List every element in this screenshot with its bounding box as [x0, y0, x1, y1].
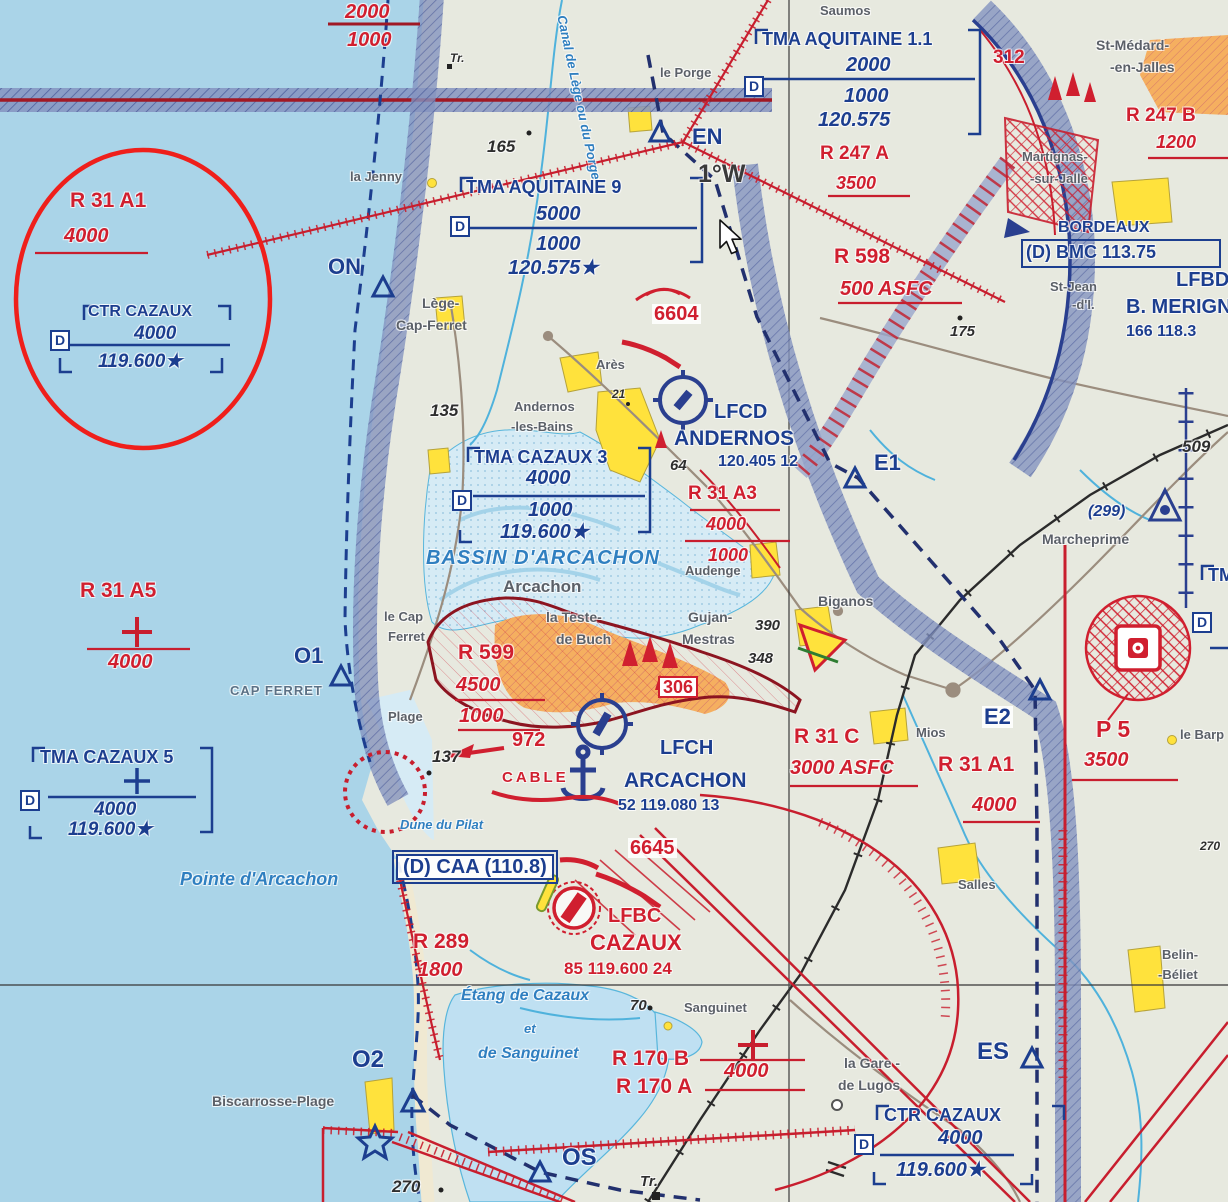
tma-aquitaine-9-upper: 5000	[536, 204, 581, 224]
r31a1-e-alt: 4000	[972, 795, 1017, 815]
tma-aquitaine-9-d-badge: D	[450, 216, 470, 237]
r247b-alt: 1200	[1156, 133, 1196, 151]
r247b-title: R 247 B	[1126, 106, 1196, 125]
town-arcachon: Arcachon	[503, 578, 581, 595]
town-le-porge: le Porge	[660, 66, 711, 79]
r31a5-alt: 4000	[108, 652, 153, 672]
tma-cazaux-3-lower: 1000	[528, 500, 573, 520]
pointe-arcachon-label: Pointe d'Arcachon	[180, 870, 338, 888]
town-st-medard-1: St-Médard-	[1096, 38, 1169, 52]
town-andernos-2: -les-Bains	[511, 420, 573, 433]
town-lege-1: Lège-	[422, 296, 459, 310]
town-la-jenny: la Jenny	[350, 170, 402, 183]
caa-box-label: (D) CAA (110.8)	[396, 854, 554, 880]
spot-270: 270	[392, 1178, 420, 1195]
r31a5-title: R 31 A5	[80, 580, 156, 601]
spot-70: 70	[630, 998, 647, 1013]
spot-390: 390	[755, 618, 780, 633]
tma-aquitaine-9-freq: 120.575★	[508, 258, 598, 278]
tma-aquitaine-9-title: TMA AQUITAINE 9	[466, 178, 621, 196]
spot-175: 175	[950, 324, 975, 339]
d-badge-east: D	[1192, 612, 1212, 633]
town-gujan-1: Gujan-	[688, 610, 732, 624]
etang-sanguinet-label: de Sanguinet	[478, 1046, 578, 1062]
town-st-jean-2: -d'I.	[1072, 298, 1095, 311]
tma-cazaux-3-upper: 4000	[526, 468, 571, 488]
ctr-cazaux-se-freq: 119.600★	[896, 1160, 985, 1180]
r31a1-nw-alt: 4000	[64, 226, 109, 246]
town-martignas-2: -sur-Jalle	[1030, 172, 1088, 185]
r31a1-nw-title: R 31 A1	[70, 190, 146, 211]
r31a1-e-title: R 31 A1	[938, 754, 1014, 775]
town-saumos: Saumos	[820, 4, 871, 17]
etang-cazaux-label: Étang de Cazaux	[461, 988, 589, 1004]
cazaux-airport-data: 85 119.600 24	[564, 960, 672, 977]
town-martignas-1: Martignas-	[1022, 150, 1088, 163]
town-belin-2: -Béliet	[1158, 968, 1198, 981]
airway-alt-upper: 2000	[345, 2, 390, 22]
declination-label: 1°W	[698, 162, 746, 187]
town-ares: Arès	[596, 358, 625, 371]
spot-165: 165	[487, 138, 515, 155]
ctr-cazaux-se-alt: 4000	[938, 1128, 983, 1148]
r599-title: R 599	[458, 642, 514, 663]
ctr-cazaux-nw-d-badge: D	[50, 330, 70, 351]
tma-aquitaine-11-freq: 120.575	[818, 110, 890, 130]
ctr-cazaux-se-d-badge: D	[854, 1134, 874, 1155]
town-belin-1: Belin-	[1162, 948, 1198, 961]
ctr-cazaux-nw-title: CTR CAZAUX	[88, 304, 192, 320]
wpt-es: ES	[977, 1040, 1009, 1064]
tma-cazaux-3-d-badge: D	[452, 490, 472, 511]
town-le-cap-1: le Cap	[384, 610, 423, 623]
tr-mark-north: Tr.	[450, 52, 464, 64]
bordeaux-title: BORDEAUX	[1058, 220, 1150, 236]
cable-label: CABLE	[502, 770, 569, 785]
town-la-gare-2: de Lugos	[838, 1078, 900, 1092]
bordeaux-bmc: (D) BMC 113.75	[1026, 243, 1156, 261]
obstacle-972: 972	[512, 730, 545, 750]
tma-cazaux-3-freq: 119.600★	[500, 522, 589, 542]
spot-135: 135	[430, 402, 458, 419]
r599-lower: 1000	[459, 706, 504, 726]
wpt-o2: O2	[352, 1048, 384, 1072]
r247a-title: R 247 A	[820, 144, 889, 163]
town-biganos: Biganos	[818, 594, 873, 608]
tma-aquitaine-11-d-badge: D	[744, 76, 764, 97]
ctr-cazaux-nw-freq: 119.600★	[98, 352, 182, 371]
airway-alt-lower: 1000	[347, 30, 392, 50]
wpt-en: EN	[692, 126, 723, 148]
r31a3-title: R 31 A3	[688, 484, 757, 503]
town-andernos-1: Andernos	[514, 400, 575, 413]
merignac-name: B. MERIGNAC	[1126, 297, 1228, 317]
spot-64: 64	[670, 458, 687, 473]
town-biscarrosse: Biscarrosse-Plage	[212, 1094, 334, 1108]
wpt-o1: O1	[294, 645, 323, 667]
obstacle-6604: 6604	[652, 304, 701, 324]
r289-alt: 1800	[418, 960, 463, 980]
labels-layer: 20001000R 31 A14000CTR CAZAUX4000119.600…	[0, 0, 1228, 1202]
r31a3-upper: 4000	[706, 515, 746, 533]
wpt-e1: E1	[874, 452, 901, 474]
andernos-airport-data: 120.405 12	[718, 454, 798, 470]
spot-348: 348	[748, 651, 773, 666]
r599-upper: 4500	[456, 675, 501, 695]
tma-aquitaine-11-lower: 1000	[844, 86, 889, 106]
town-plage: Plage	[388, 710, 423, 723]
spot-137: 137	[432, 748, 460, 765]
bassin-darcachon-label: BASSIN D'ARCACHON	[426, 548, 660, 568]
r598-alt: 500 ASFC	[840, 279, 933, 299]
p5-title: P 5	[1096, 718, 1130, 741]
town-gujan-2: Mestras	[682, 632, 735, 646]
town-la-gare-1: la Gare -	[844, 1056, 900, 1070]
town-salles: Salles	[958, 878, 996, 891]
canal-lege-label: Canal de Lège ou du Porge	[555, 14, 603, 181]
tma-cazaux-3-title: TMA CAZAUX 3	[474, 448, 607, 466]
tma-cazaux-5-freq: 119.600★	[68, 820, 152, 839]
p5-alt: 3500	[1084, 750, 1129, 770]
lfch-code: LFCH	[660, 738, 713, 758]
obstacle-306: 306	[658, 676, 698, 698]
r31c-alt: 3000 ASFC	[790, 758, 894, 778]
tma-cazaux-5-title: TMA CAZAUX 5	[40, 748, 173, 766]
r598-title: R 598	[834, 246, 890, 267]
town-la-teste-1: la Teste-	[546, 610, 602, 624]
vfr-chart: 20001000R 31 A14000CTR CAZAUX4000119.600…	[0, 0, 1228, 1202]
tma-clip-east: TMA	[1208, 566, 1228, 584]
tma-cazaux-5-alt: 4000	[94, 800, 136, 819]
r31c-title: R 31 C	[794, 726, 859, 747]
ctr-cazaux-se-title: CTR CAZAUX	[884, 1106, 1001, 1124]
merignac-data: 166 118.3	[1126, 324, 1196, 340]
arcachon-airport-data: 52 119.080 13	[618, 798, 719, 814]
dune-pilat-label: Dune du Pilat	[400, 818, 483, 831]
r170-alt: 4000	[724, 1061, 769, 1081]
town-lege-2: Cap-Ferret	[396, 318, 467, 332]
ctr-cazaux-nw-alt: 4000	[134, 324, 176, 343]
r170a-title: R 170 A	[616, 1076, 692, 1097]
lfbd-code: LFBD	[1176, 270, 1228, 290]
arcachon-airport-name: ARCACHON	[624, 770, 747, 791]
tma-cazaux-5-d-badge: D	[20, 790, 40, 811]
town-audenge: Audenge	[685, 564, 741, 577]
town-st-jean-1: St-Jean	[1050, 280, 1097, 293]
wpt-on: ON	[328, 256, 361, 278]
r247a-alt: 3500	[836, 174, 876, 192]
etang-et-label: et	[524, 1022, 536, 1035]
town-sanguinet: Sanguinet	[684, 1001, 747, 1014]
tma-aquitaine-11-title: TMA AQUITAINE 1.1	[762, 30, 932, 48]
r289-title: R 289	[413, 931, 469, 952]
cazaux-airport-name: CAZAUX	[590, 932, 682, 954]
spot-270-east: 270	[1200, 840, 1220, 852]
town-le-cap-2: Ferret	[388, 630, 425, 643]
obstacle-509: 509	[1182, 438, 1210, 455]
r31a3-lower: 1000	[708, 546, 748, 564]
andernos-airport-name: ANDERNOS	[674, 428, 794, 449]
obstacle-6645: 6645	[628, 838, 677, 858]
spot-21: 21	[612, 388, 625, 400]
tma-aquitaine-11-upper: 2000	[846, 55, 891, 75]
wpt-os: OS	[562, 1146, 597, 1170]
town-mios: Mios	[916, 726, 946, 739]
town-marcheprime: Marcheprime	[1042, 532, 1129, 546]
town-la-teste-2: de Buch	[556, 632, 611, 646]
tma-aquitaine-9-lower: 1000	[536, 234, 581, 254]
obstacle-312: 312	[993, 48, 1025, 67]
cap-ferret-point-label: CAP FERRET	[230, 684, 323, 697]
lfcd-code: LFCD	[714, 402, 767, 422]
r170b-title: R 170 B	[612, 1048, 689, 1069]
obstacle-299: (299)	[1088, 504, 1125, 520]
wpt-e2: E2	[982, 706, 1013, 728]
tr-mark-south: Tr.	[640, 1174, 658, 1189]
town-le-barp: le Barp	[1180, 728, 1224, 741]
lfbc-code: LFBC	[608, 906, 661, 926]
town-st-medard-2: -en-Jalles	[1110, 60, 1175, 74]
